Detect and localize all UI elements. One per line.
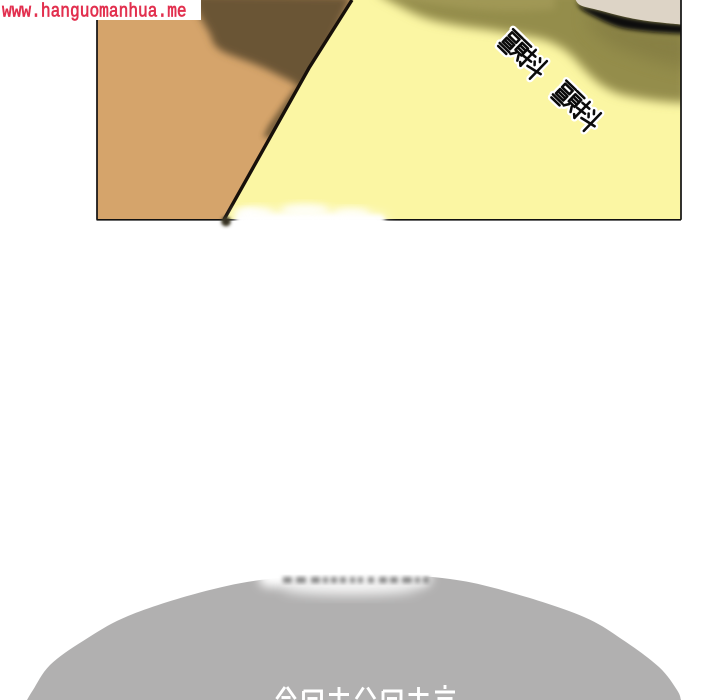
svg-text:www.hanguomanhua.me: www.hanguomanhua.me xyxy=(2,1,187,23)
